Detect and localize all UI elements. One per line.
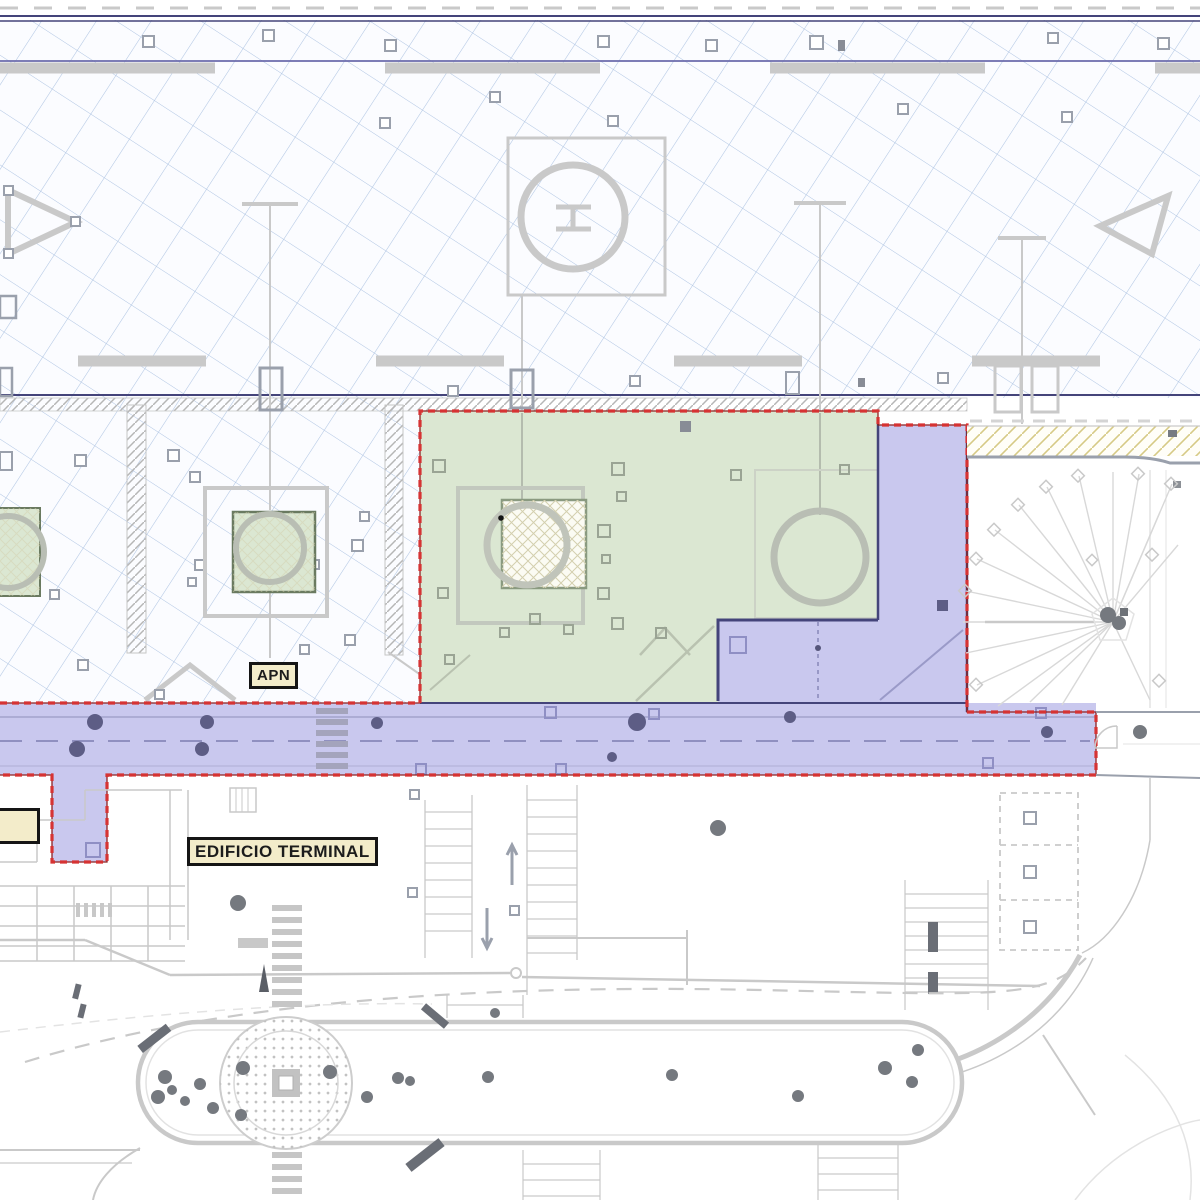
terminal-area (0, 712, 1200, 1200)
median-island (137, 1002, 1010, 1172)
curved-roads (900, 778, 1200, 1200)
plan-canvas: APN EDIFICIO TERMINAL (0, 0, 1200, 1200)
radial-fan (959, 467, 1178, 706)
site-plan-drawing (0, 0, 1200, 1200)
mini-crosswalk (76, 903, 112, 917)
parking-combs (425, 785, 577, 1018)
dashed-structures (1000, 793, 1078, 950)
left-edge-label (0, 808, 40, 844)
right-area (959, 421, 1200, 708)
apn-label: APN (249, 662, 298, 689)
edificio-terminal-label: EDIFICIO TERMINAL (187, 837, 378, 866)
